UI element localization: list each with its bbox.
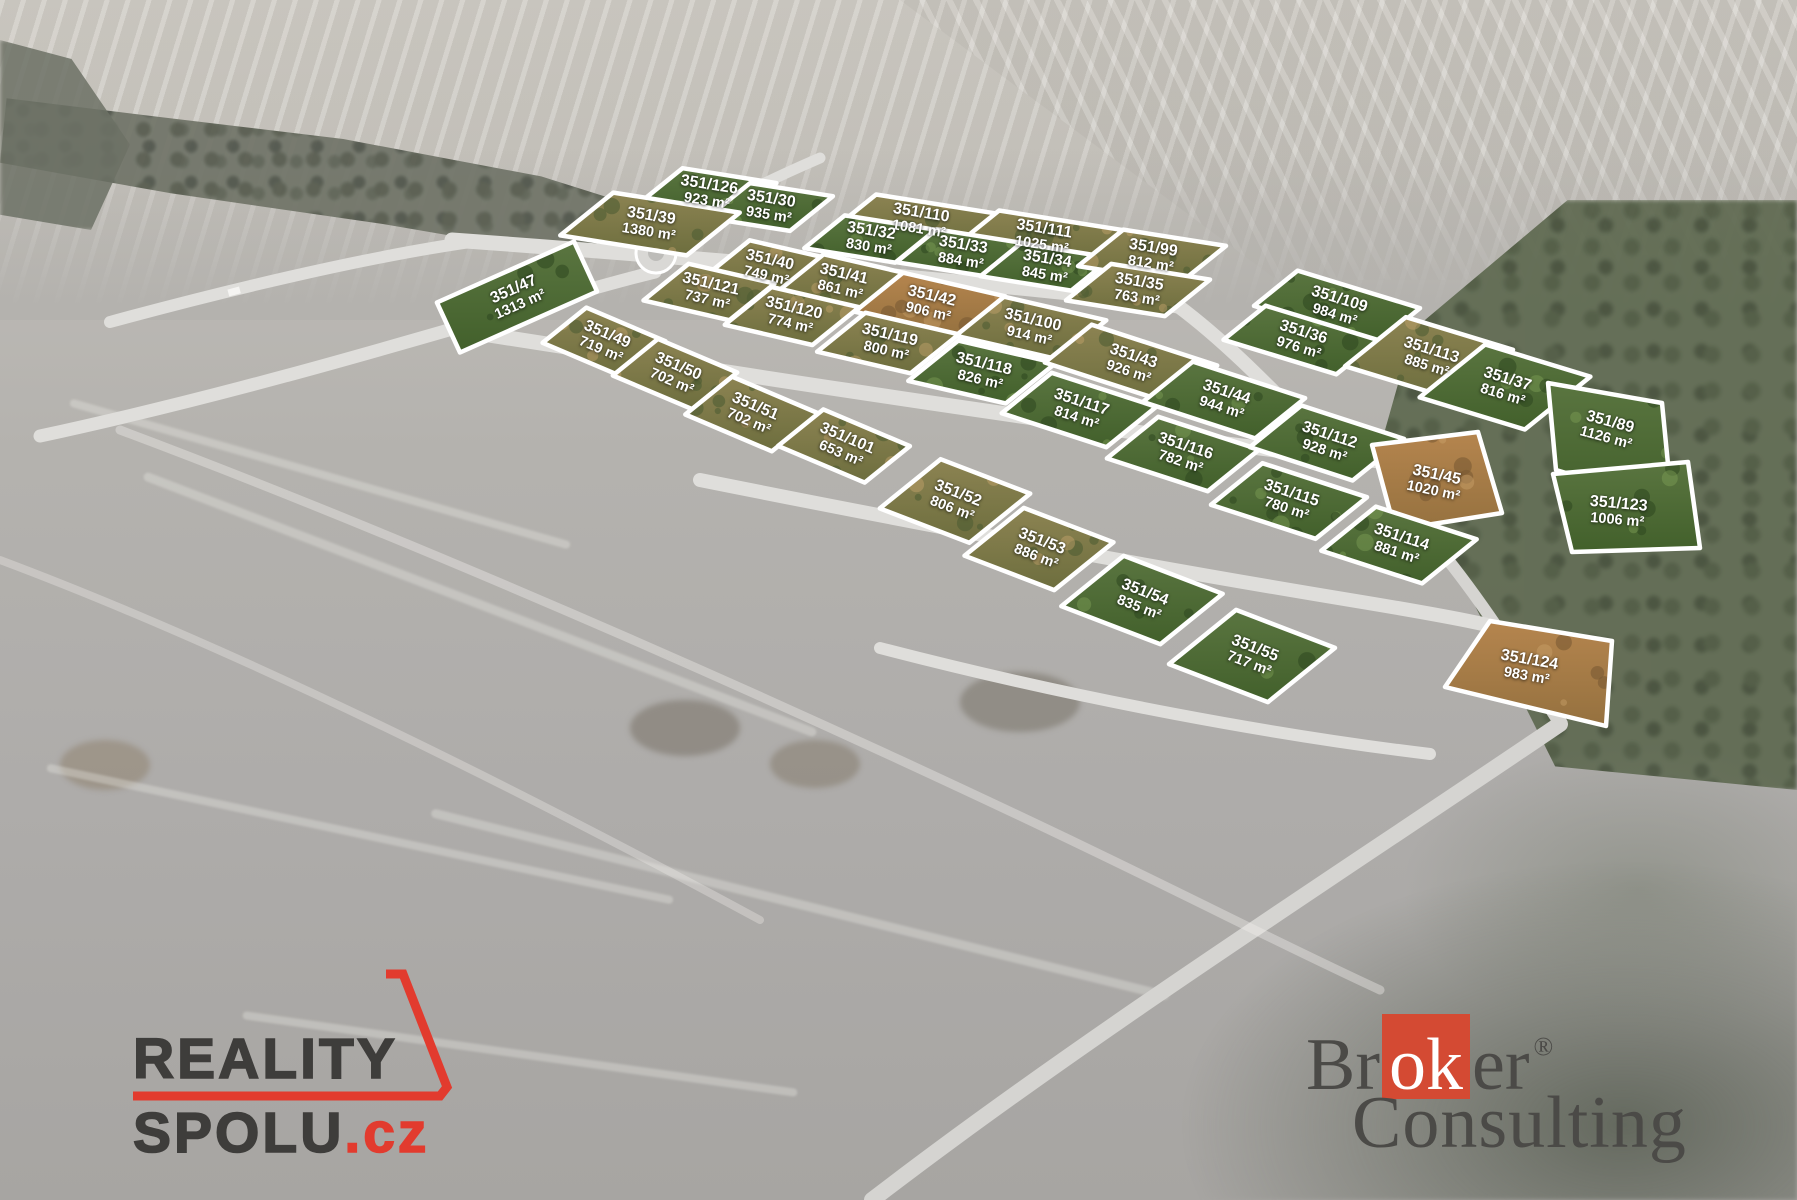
aerial-photo: 351/126923 m²351/30935 m²351/391380 m²35… bbox=[0, 0, 1797, 1200]
road bbox=[110, 242, 470, 322]
road bbox=[120, 430, 1380, 990]
registered-mark: ® bbox=[1534, 1032, 1554, 1061]
road bbox=[0, 560, 760, 920]
reality-spolu-logo: REALITY SPOLU.cz bbox=[133, 1030, 429, 1162]
spolu-wordmark: SPOLU bbox=[133, 1101, 344, 1165]
consulting-wordmark: Consulting bbox=[1352, 1086, 1687, 1160]
broker-consulting-logo: Broker® Consulting bbox=[1306, 1014, 1687, 1160]
plot-area bbox=[1553, 462, 1700, 552]
reality-wordmark: REALITY bbox=[133, 1030, 429, 1088]
road bbox=[880, 648, 1430, 754]
cz-tld: .cz bbox=[344, 1101, 429, 1165]
